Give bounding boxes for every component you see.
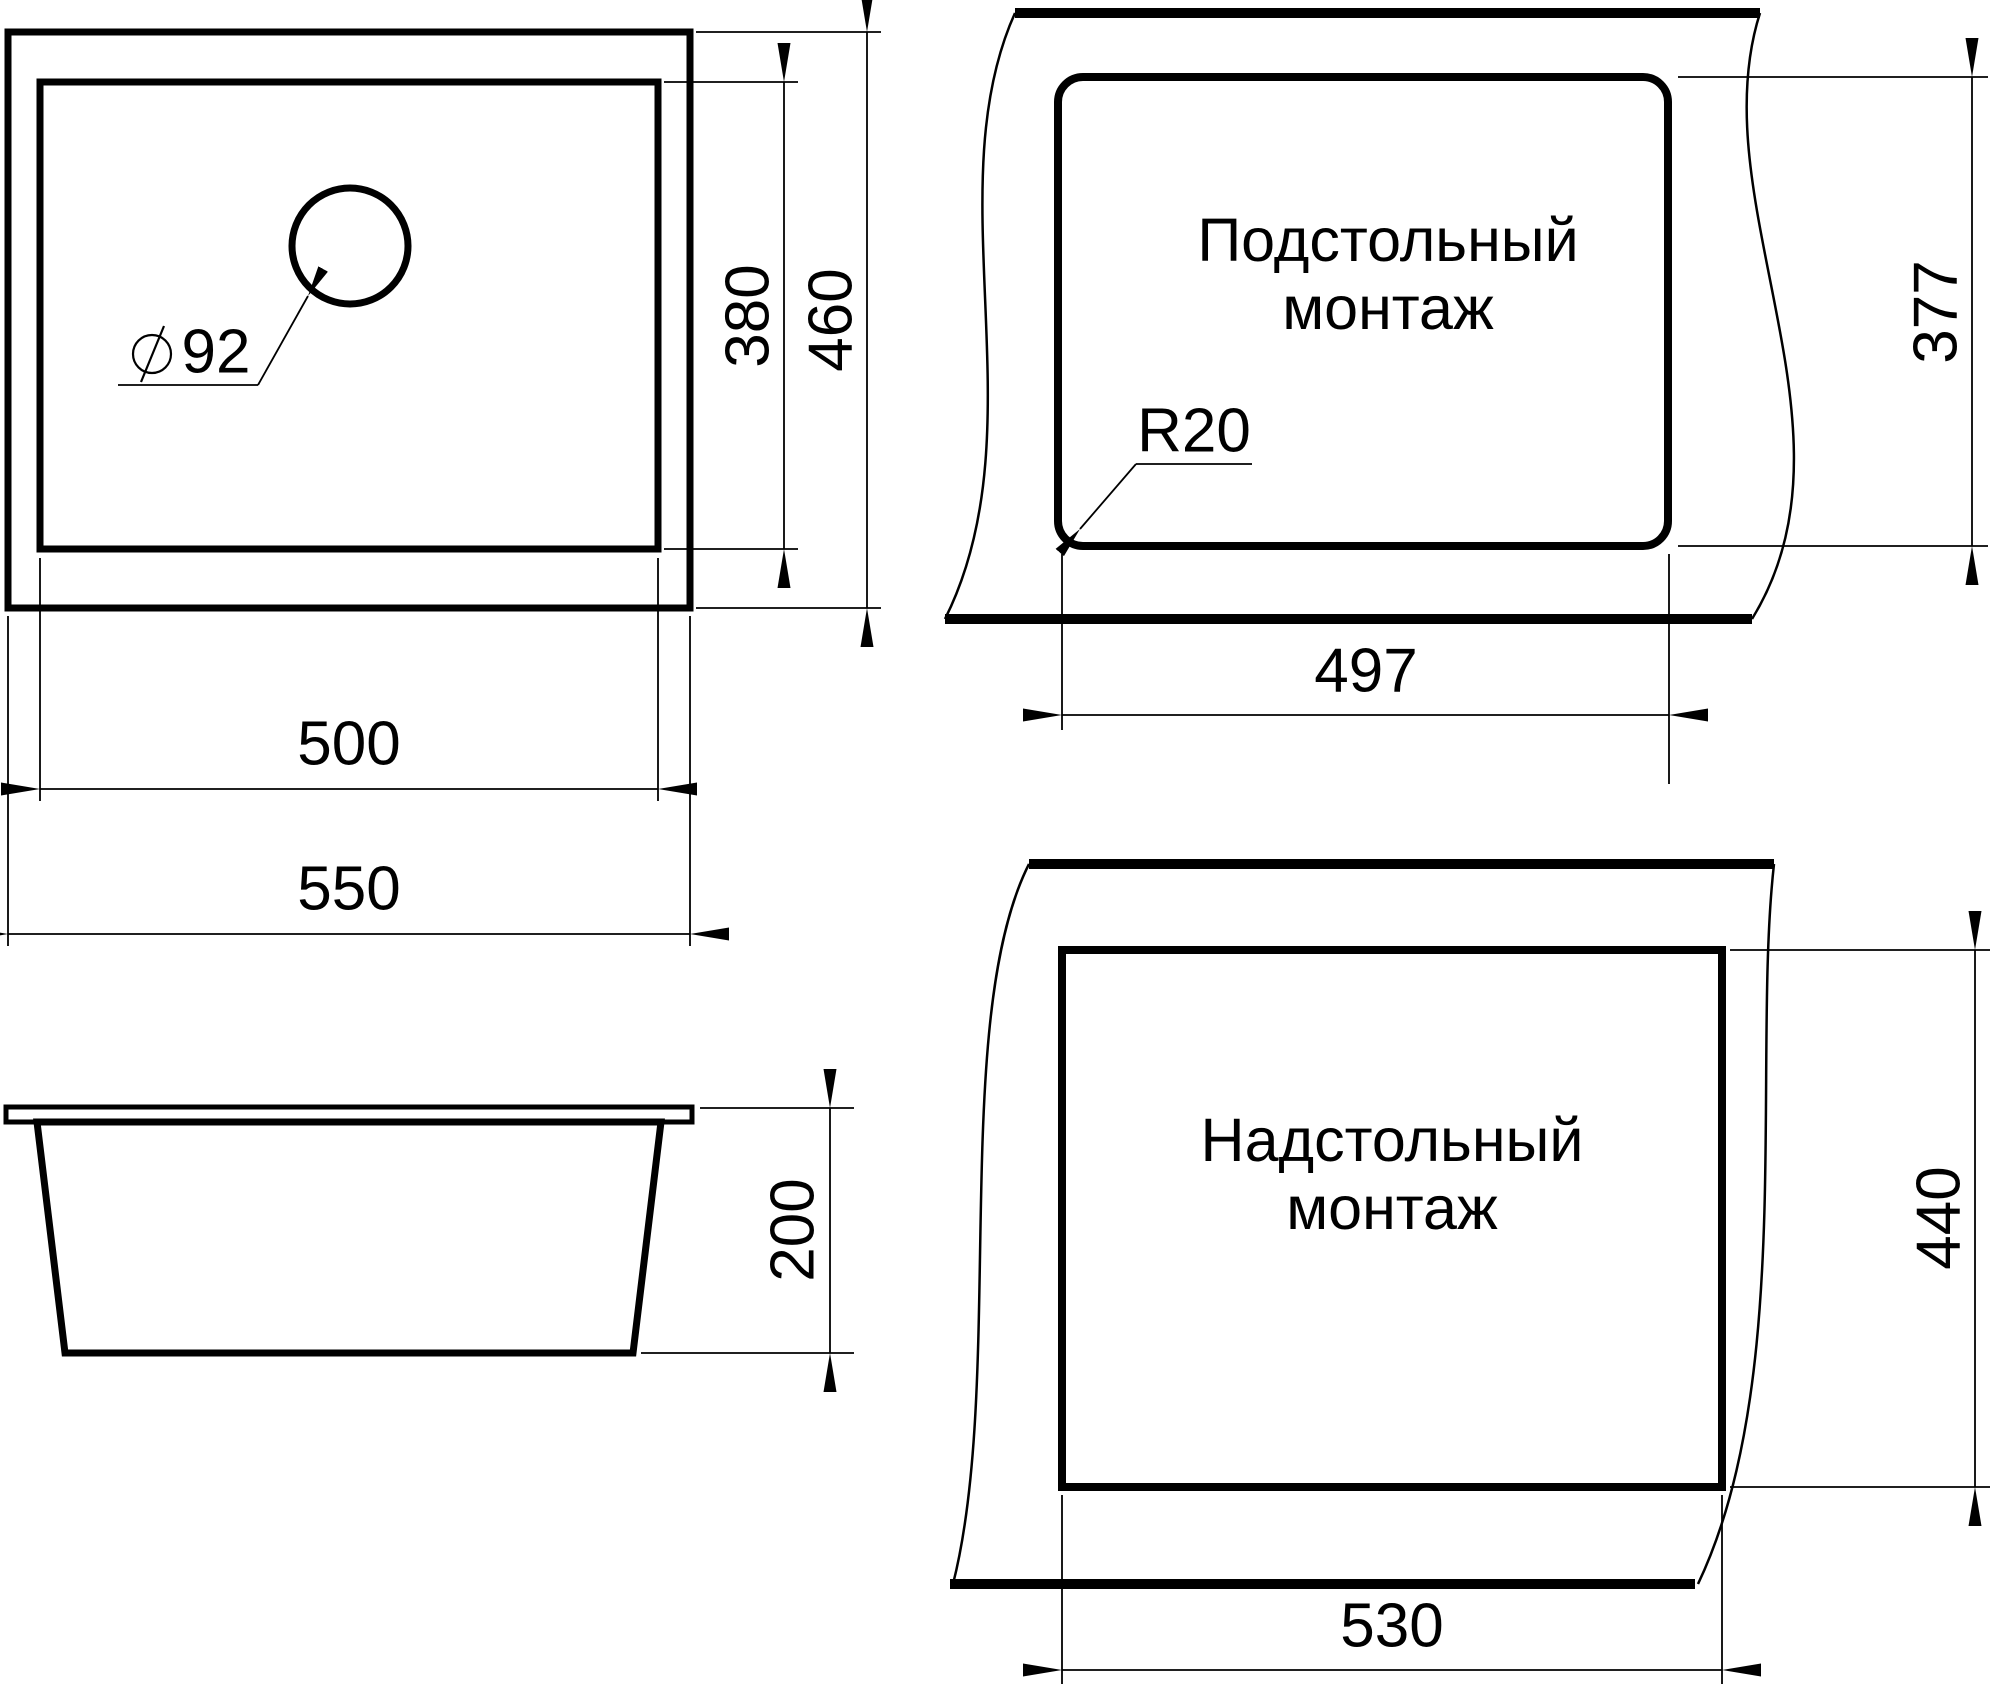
- dimension-outer-width-550: 550: [8, 616, 690, 946]
- sink-bowl-profile: [37, 1122, 661, 1353]
- topmount-label-line1: Надстольный: [1201, 1106, 1584, 1174]
- corner-radius-callout: R20: [1080, 397, 1252, 530]
- hole-diameter-value: 92: [182, 318, 251, 387]
- countertop-break-line-left: [953, 864, 1029, 1584]
- dimension-value: 530: [1340, 1592, 1443, 1661]
- faucet-hole-circle: [292, 188, 408, 304]
- hole-diameter-callout: 92: [118, 296, 308, 387]
- undermount-label-line1: Подстольный: [1197, 206, 1578, 274]
- dimension-value: 500: [297, 710, 400, 779]
- dimension-value: 550: [297, 855, 400, 924]
- undermount-label-line2: монтаж: [1282, 274, 1494, 342]
- dimension-cutout-height-377: 377: [1678, 77, 1988, 546]
- topmount-label-line2: монтаж: [1286, 1174, 1498, 1242]
- topmount-cutout-view: Надстольный монтаж 530 440: [950, 864, 1990, 1684]
- dimension-value: 460: [797, 268, 866, 371]
- dimension-cutout-width-530: 530: [1062, 1495, 1722, 1684]
- drawing-sheet: 92 500 550 380: [0, 0, 2000, 1690]
- inner-bowl-rect: [40, 82, 658, 549]
- dimension-value: 380: [714, 264, 783, 367]
- undermount-cutout-view: Подстольный монтаж R20 497 377: [945, 13, 1988, 784]
- outer-rim-rect: [8, 32, 690, 608]
- dimension-cutout-height-440: 440: [1730, 950, 1990, 1487]
- sink-top-view: 92 500 550 380: [8, 32, 881, 946]
- corner-radius-value: R20: [1137, 397, 1251, 466]
- dimension-value: 377: [1902, 260, 1971, 363]
- dimension-inner-depth-380: 380: [664, 82, 798, 549]
- dimension-value: 497: [1314, 637, 1417, 706]
- sink-side-view: 200: [6, 1107, 854, 1353]
- countertop-break-line-right: [1747, 13, 1794, 619]
- dimension-value: 200: [759, 1178, 828, 1281]
- dimension-inner-width-500: 500: [40, 558, 658, 801]
- countertop-break-line-right: [1698, 864, 1774, 1584]
- sink-technical-drawing: 92 500 550 380: [0, 0, 2000, 1690]
- dimension-value: 440: [1905, 1166, 1974, 1269]
- countertop-break-line-left: [945, 13, 1015, 619]
- dimension-cutout-width-497: 497: [1062, 554, 1669, 784]
- leader-arrow-line: [1080, 464, 1136, 529]
- leader-arrow-line: [258, 296, 308, 385]
- dimension-depth-200: 200: [641, 1108, 854, 1353]
